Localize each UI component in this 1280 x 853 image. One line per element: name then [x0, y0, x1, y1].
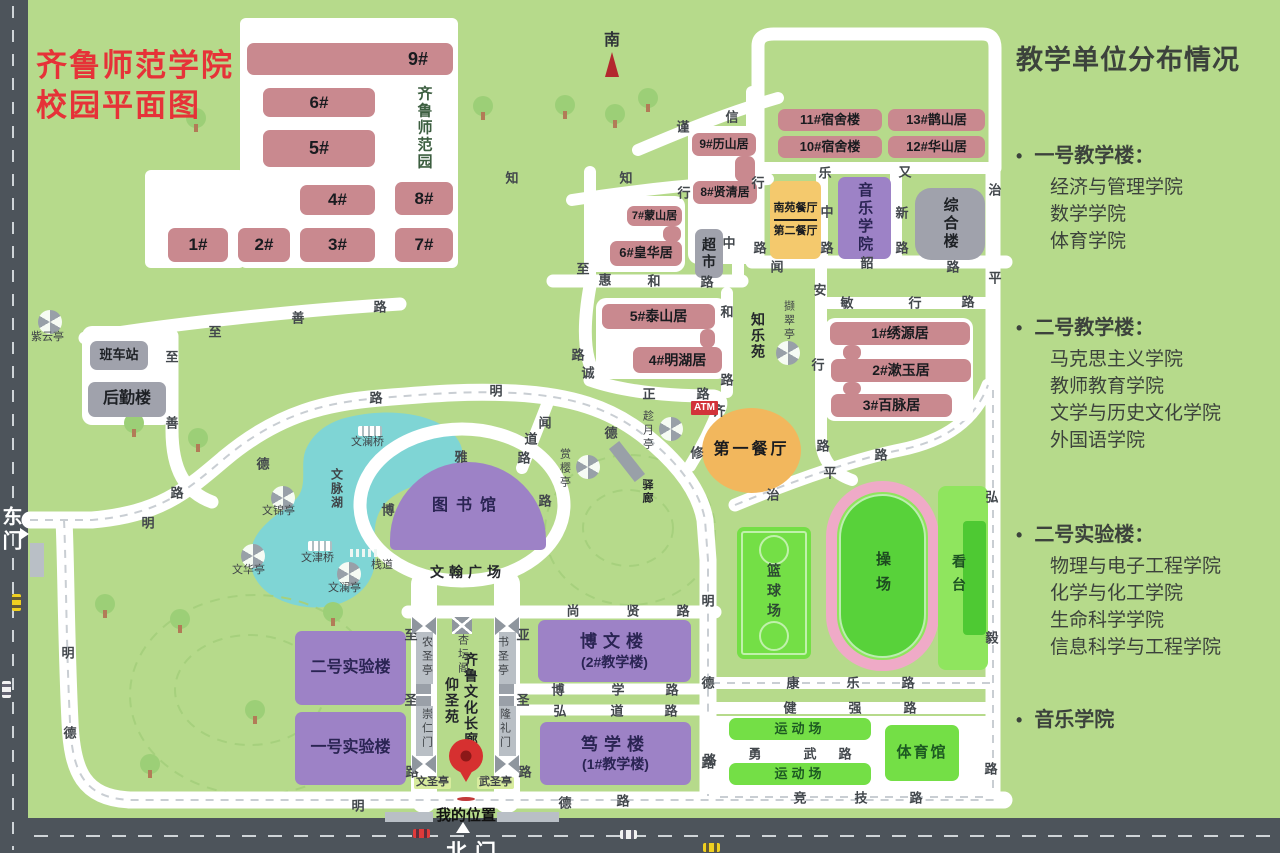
- car-icon: [413, 829, 430, 838]
- poi-label: 农圣亭: [420, 636, 432, 678]
- poi-label: 书圣亭: [496, 636, 508, 678]
- area-label: 文脉湖: [329, 468, 346, 510]
- legend-section-heading: 音乐学院: [1016, 703, 1274, 732]
- building-zonghelou: 综合楼: [915, 188, 985, 260]
- road-label: 道: [610, 701, 623, 720]
- tree-icon: [245, 700, 265, 724]
- road-label: 明: [489, 381, 502, 400]
- poi-label: 文圣亭: [414, 777, 451, 789]
- road-label: 行: [751, 173, 764, 192]
- building-label: 一号实验楼: [310, 739, 390, 757]
- building-dorm7: 7#蒙山居: [627, 206, 682, 226]
- legend-sections: 一号教学楼：经济与管理学院数学学院体育学院二号教学楼：马克思主义学院教师教育学院…: [1016, 139, 1274, 732]
- my-location-label: 我的位置: [425, 804, 507, 825]
- road-label: 路: [700, 272, 713, 291]
- road-label: 修: [690, 443, 703, 462]
- road-label: 乐: [818, 163, 831, 182]
- building-conn3: [700, 329, 715, 348]
- road-label: 勇: [748, 744, 761, 763]
- poi-label: 杏坛阁: [456, 634, 468, 676]
- road-label: 康: [786, 673, 799, 692]
- road-label: 行: [908, 293, 921, 312]
- road-label: 安: [813, 280, 826, 299]
- road-label: 平: [988, 268, 1001, 287]
- poi-label: 栈道: [371, 560, 393, 572]
- building-label: 11#宿舍楼: [800, 113, 860, 128]
- road-label: 知: [619, 168, 632, 187]
- building-dorm6: 6#皇华居: [610, 241, 682, 266]
- building-label: 5#: [309, 138, 329, 159]
- road-label: 竞: [793, 788, 806, 807]
- building-3: 3#: [300, 228, 375, 262]
- road-label: 路: [701, 753, 714, 772]
- tree-icon: [95, 594, 115, 618]
- road-label: 明: [141, 513, 154, 532]
- legend-item: 化学与化工学院: [1016, 580, 1274, 607]
- building-5: 5#: [263, 130, 375, 167]
- road-label: 德: [256, 454, 269, 473]
- road-label: 新: [895, 203, 908, 222]
- building-label: 4#: [328, 190, 347, 210]
- road-label: 路: [373, 297, 386, 316]
- building-7: 7#: [395, 228, 453, 262]
- road-label: 路: [984, 759, 997, 778]
- poi-icon: [412, 755, 436, 773]
- building-2: 2#: [238, 228, 290, 262]
- legend-section: 二号教学楼：马克思主义学院教师教育学院文学与历史文化学院外国语学院: [1016, 311, 1274, 454]
- building-sublabel: (1#教学楼): [582, 756, 649, 772]
- tree-icon: [605, 104, 625, 128]
- road-label: 路: [816, 436, 829, 455]
- road-label: 正: [642, 384, 655, 403]
- building-label: 9#历山居: [699, 138, 748, 152]
- legend-section-heading: 一号教学楼：: [1016, 139, 1274, 168]
- 文津桥-icon: [308, 541, 332, 551]
- building-label: 6#: [310, 93, 329, 113]
- road-label: 明: [701, 591, 714, 610]
- 文澜桥-icon: [358, 426, 382, 436]
- building-dorm11: 11#宿舍楼: [778, 109, 882, 131]
- car-icon: [620, 830, 637, 839]
- road-label: 至: [165, 347, 178, 366]
- road-label: 行: [811, 355, 824, 374]
- building-label: 1#: [189, 235, 208, 255]
- road-label: 路: [616, 791, 629, 810]
- building-label: 南苑餐厅: [774, 202, 818, 215]
- road-label: 中: [722, 233, 735, 252]
- road-label: 博: [381, 500, 394, 519]
- building-label: 图书馆: [432, 497, 504, 515]
- building-conn4: [843, 345, 861, 360]
- building-dorm9: 9#历山居: [692, 133, 756, 156]
- building-dorm10: 10#宿舍楼: [778, 136, 882, 158]
- road-label: 路: [369, 388, 382, 407]
- road-label: 弘: [553, 701, 566, 720]
- road-label: 明: [61, 643, 74, 662]
- road-label: 行: [677, 183, 690, 202]
- road-label: 闻: [538, 413, 551, 432]
- building-label: 13#鹊山居: [906, 113, 967, 128]
- building-canteen2: 南苑餐厅第二餐厅: [770, 181, 821, 259]
- area-label: 仰圣苑: [442, 677, 462, 725]
- tree-icon: [638, 88, 658, 112]
- legend-item: 马克思主义学院: [1016, 346, 1274, 373]
- building-lab1: 一号实验楼: [295, 712, 406, 785]
- legend-item: 物理与电子工程学院: [1016, 553, 1274, 580]
- 隆礼门-icon: [499, 684, 514, 706]
- building-dorm12: 12#华山居: [888, 136, 985, 158]
- legend-item: 外国语学院: [1016, 427, 1274, 454]
- road-label: 路: [665, 680, 678, 699]
- building-1: 1#: [168, 228, 228, 262]
- east-gate-arrow-icon: [20, 528, 29, 540]
- building-canteen1: 第一餐厅: [702, 408, 801, 493]
- poi-label: 崇仁门: [420, 708, 432, 750]
- tree-icon: [555, 95, 575, 119]
- road-label: 贤: [626, 601, 639, 620]
- building-label: 第一餐厅: [713, 441, 789, 459]
- legend-section: 一号教学楼：经济与管理学院数学学院体育学院: [1016, 139, 1274, 255]
- 崇仁门-icon: [416, 684, 431, 706]
- road-label: 路: [696, 384, 709, 403]
- road-label: 路: [538, 491, 551, 510]
- road-label: 治: [766, 485, 779, 504]
- legend-item: 数学学院: [1016, 201, 1274, 228]
- tree-icon: [170, 609, 190, 633]
- building-sportsfield2: 运动场: [729, 763, 871, 785]
- 趁月亭-icon: [659, 417, 683, 441]
- legend-item: 生命科学学院: [1016, 607, 1274, 634]
- road-label: 闻: [770, 257, 783, 276]
- building-label: 9#: [408, 49, 428, 70]
- poi-label: 文华亭: [232, 565, 265, 577]
- legend-section: 音乐学院: [1016, 703, 1274, 732]
- road-label: 明: [351, 796, 364, 815]
- building-4: 4#: [300, 185, 375, 215]
- legend-section-heading: 二号实验楼：: [1016, 518, 1274, 547]
- building-label: 超市: [701, 237, 717, 271]
- building-dorm1: 1#绣源居: [830, 322, 970, 345]
- road-label: 路: [753, 238, 766, 257]
- road-label: 技: [854, 788, 867, 807]
- legend-item: 经济与管理学院: [1016, 174, 1274, 201]
- building-label: 4#明湖居: [649, 352, 707, 368]
- road-label: 路: [571, 345, 584, 364]
- map-title-line2: 校园平面图: [36, 86, 234, 126]
- building-label: 运动场: [774, 767, 825, 782]
- road-label: 学: [611, 680, 624, 699]
- area-label: 驿廊: [639, 479, 655, 505]
- building-label: 体育馆: [896, 744, 947, 761]
- area-label: 知乐苑: [748, 312, 768, 360]
- legend-item: 文学与历史文化学院: [1016, 400, 1274, 427]
- building-dorm4: 4#明湖居: [633, 347, 722, 373]
- compass: 南: [604, 26, 620, 77]
- road-label: 圣: [516, 690, 529, 709]
- road-label: 弘: [985, 487, 998, 506]
- building-label: 2#漱玉居: [872, 362, 930, 378]
- car-icon: [12, 594, 21, 611]
- poi-label: 文津桥: [301, 553, 334, 565]
- building-label: 看台: [949, 554, 969, 600]
- road-label: 路: [170, 483, 183, 502]
- area-label: 齐鲁师范园: [414, 86, 435, 171]
- road-label: 诚: [581, 363, 594, 382]
- car-icon: [703, 843, 720, 852]
- map-title-line1: 齐鲁师范学院: [36, 46, 234, 86]
- road-label: 惠: [598, 270, 611, 289]
- building-conn5: [843, 382, 861, 395]
- building-label: 音乐学院: [856, 182, 873, 254]
- building-label: 班车站: [99, 348, 138, 363]
- building-gym: 体育馆: [885, 725, 959, 781]
- building-houqinlou: 后勤楼: [88, 382, 166, 417]
- building-label: 2#: [255, 235, 274, 255]
- road-label: 敏: [840, 293, 853, 312]
- compass-arrow-icon: [605, 52, 619, 77]
- road-label: 善: [165, 413, 178, 432]
- road-label: 德: [558, 793, 571, 812]
- atm-badge: ATM: [691, 401, 718, 415]
- road-label: 乐: [846, 673, 859, 692]
- 杏坛阁-icon: [452, 617, 472, 634]
- road-label: 强: [848, 698, 861, 717]
- building-label: 博文楼: [580, 632, 649, 652]
- building-label: 运动场: [774, 722, 825, 737]
- road-label: 韶: [860, 253, 873, 272]
- campus-map: 9#6#5#4#8#1#2#3#7#11#宿舍楼13#鹊山居10#宿舍楼12#华…: [0, 0, 1280, 853]
- road-label: 平: [823, 463, 836, 482]
- tree-icon: [188, 428, 208, 452]
- tree-icon: [140, 754, 160, 778]
- road-label: 路: [961, 292, 974, 311]
- road-label: 路: [901, 673, 914, 692]
- road-label: 知: [505, 168, 518, 187]
- divider: [774, 219, 817, 221]
- poi-label: 趁月亭: [641, 410, 653, 452]
- compass-label: 南: [604, 26, 620, 50]
- building-bowenlou: 博文楼(2#教学楼): [538, 620, 691, 682]
- building-label: 二号实验楼: [310, 659, 390, 677]
- road-label: 路: [517, 448, 530, 467]
- road-label: 毅: [985, 628, 998, 647]
- legend-item: 信息科学与工程学院: [1016, 634, 1274, 661]
- road-label: 至: [576, 259, 589, 278]
- road-label: 健: [783, 698, 796, 717]
- road-label: 德: [63, 723, 76, 742]
- legend-title: 教学单位分布情况: [1016, 38, 1274, 77]
- road-label: 博: [551, 680, 564, 699]
- sidewalk-patch: [30, 543, 44, 577]
- road-label: 路: [518, 762, 531, 781]
- legend-item: 体育学院: [1016, 228, 1274, 255]
- road-label: 路: [909, 788, 922, 807]
- road-label: 路: [720, 370, 733, 389]
- poi-label: 文澜亭: [328, 583, 361, 595]
- tree-icon: [473, 96, 493, 120]
- building-9: 9#: [247, 43, 453, 75]
- 撷翠亭-icon: [776, 341, 800, 365]
- building-label: 7#蒙山居: [632, 210, 677, 223]
- building-label: 5#泰山居: [630, 308, 688, 324]
- north-gate-label: 北门: [446, 836, 504, 853]
- building-label: 3#: [328, 235, 347, 255]
- pin-shadow: [457, 797, 475, 801]
- building-label: 10#宿舍楼: [800, 140, 861, 155]
- road-label: 又: [898, 162, 911, 181]
- building-dorm2: 2#漱玉居: [831, 359, 971, 382]
- building-label: 6#皇华居: [619, 246, 672, 261]
- building-music: 音乐学院: [838, 177, 891, 259]
- road-label: 路: [838, 744, 851, 763]
- building-playground: 操场: [826, 481, 939, 671]
- building-label: 第二餐厅: [774, 225, 818, 238]
- road-label: 道: [524, 429, 537, 448]
- building-label: 操场: [872, 551, 893, 601]
- building-label: 12#华山居: [906, 140, 967, 155]
- building-label: 3#百脉居: [863, 397, 921, 413]
- road-label: 谨: [676, 117, 689, 136]
- building-banchezhan: 班车站: [90, 341, 148, 370]
- my-location-pin[interactable]: [449, 739, 483, 773]
- area-label: 文翰广场: [430, 562, 506, 582]
- poi-label: 武圣亭: [477, 777, 514, 789]
- road-label: 路: [895, 238, 908, 257]
- building-label: 7#: [415, 235, 434, 255]
- road-label: 中: [820, 202, 833, 221]
- road-label: 路: [676, 601, 689, 620]
- legend-section-heading: 二号教学楼：: [1016, 311, 1274, 340]
- road-label: 德: [604, 423, 617, 442]
- road-label: 德: [701, 673, 714, 692]
- poi-label: 紫云亭: [31, 332, 64, 344]
- road-label: 路: [946, 257, 959, 276]
- car-icon: [2, 681, 11, 698]
- road-label: 路: [664, 701, 677, 720]
- 栈道-icon: [350, 549, 378, 557]
- poi-label: 文澜桥: [351, 437, 384, 449]
- poi-label: 撷翠亭: [782, 300, 794, 342]
- legend-item: 教师教育学院: [1016, 373, 1274, 400]
- building-dorm5: 5#泰山居: [602, 304, 715, 329]
- building-dorm3: 3#百脉居: [831, 394, 952, 417]
- building-sportsfield1: 运动场: [729, 718, 871, 740]
- building-label: 1#绣源居: [871, 325, 929, 341]
- 书圣亭-icon: [495, 617, 519, 635]
- road-label: 信: [725, 107, 738, 126]
- building-label: 综合楼: [941, 197, 958, 251]
- building-label: 8#贤清居: [700, 186, 749, 200]
- building-label: 笃学楼: [581, 735, 650, 755]
- road-label: 和: [720, 302, 733, 321]
- building-label: 8#: [415, 189, 434, 209]
- poi-icon: [495, 755, 519, 773]
- building-8: 8#: [395, 182, 453, 215]
- road-label: 尚: [566, 601, 579, 620]
- tree-icon: [323, 602, 343, 626]
- legend-section: 二号实验楼：物理与电子工程学院化学与化工学院生命科学学院信息科学与工程学院: [1016, 518, 1274, 661]
- road-label: 治: [988, 180, 1001, 199]
- road-label: 路: [903, 698, 916, 717]
- 赏樱亭-icon: [576, 455, 600, 479]
- building-dorm13: 13#鹊山居: [888, 109, 985, 131]
- building-dorm8: 8#贤清居: [693, 181, 757, 204]
- building-label: 篮球场: [766, 563, 782, 623]
- poi-label: 隆礼门: [498, 708, 510, 750]
- road-label: 路: [874, 445, 887, 464]
- building-basketball: 篮球场: [737, 527, 811, 659]
- road-label: 雅: [454, 447, 467, 466]
- building-conn2: [663, 226, 681, 242]
- poi-label: 赏樱亭: [558, 448, 570, 490]
- map-title: 齐鲁师范学院 校园平面图: [36, 46, 234, 127]
- building-6: 6#: [263, 88, 375, 117]
- building-sublabel: (2#教学楼): [581, 654, 648, 670]
- building-lab2: 二号实验楼: [295, 631, 406, 705]
- building-label: 后勤楼: [103, 390, 151, 408]
- poi-label: 文锦亭: [262, 506, 295, 518]
- road-label: 和: [647, 271, 660, 290]
- road-label: 善: [291, 308, 304, 327]
- building-duxuelou: 笃学楼(1#教学楼): [540, 722, 691, 785]
- road-label: 武: [803, 744, 816, 763]
- 农圣亭-icon: [412, 617, 436, 635]
- road-label: 路: [820, 238, 833, 257]
- road-label: 至: [208, 322, 221, 341]
- legend-panel: 教学单位分布情况 一号教学楼：经济与管理学院数学学院体育学院二号教学楼：马克思主…: [1016, 38, 1274, 738]
